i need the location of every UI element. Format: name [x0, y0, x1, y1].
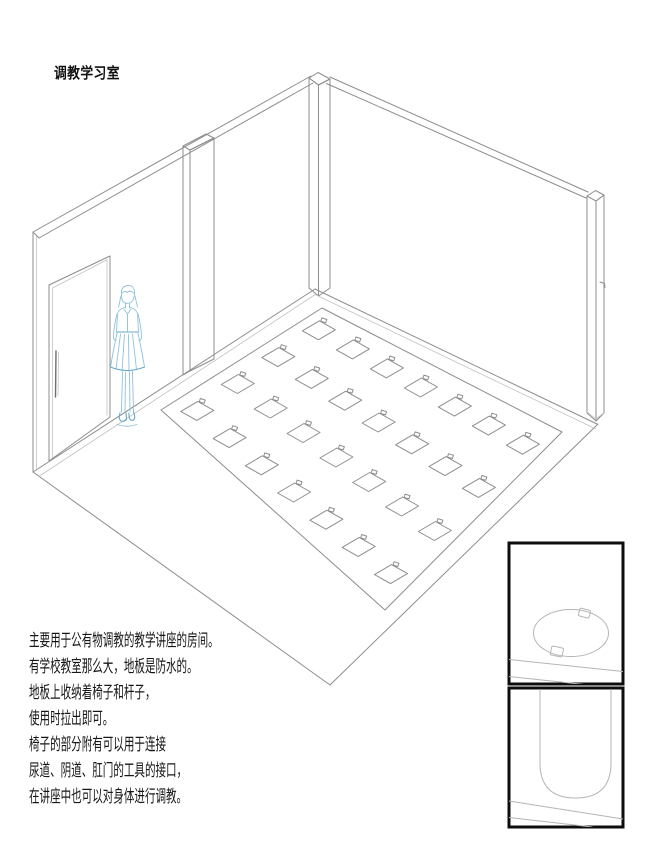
- page: 调教学习室 主要用于公有物调教的教学讲座的房间。 有学校教室那么大，地板是防水的…: [0, 0, 650, 850]
- floor-hatch: [342, 535, 375, 557]
- floor-hatch: [329, 388, 362, 410]
- floor-hatch: [310, 507, 343, 529]
- description-line: 主要用于公有物调教的教学讲座的房间。: [29, 628, 219, 654]
- floor-hatch: [262, 345, 295, 367]
- floor-hatch: [213, 426, 246, 448]
- description-line: 椅子的部分附有可以用于连接: [29, 732, 219, 758]
- floor-hatch: [353, 470, 386, 492]
- description-line: 在讲座中也可以对身体进行调教。: [29, 784, 219, 810]
- floor-hatch: [418, 519, 451, 541]
- girl-skirt: [111, 333, 145, 372]
- floor-hatch: [295, 367, 328, 389]
- floor-hatch: [336, 337, 369, 359]
- floor-hatch: [438, 394, 471, 416]
- floor-hatch: [287, 421, 320, 443]
- description-line: 地板上收纳着椅子和杆子，: [29, 680, 219, 706]
- girl-shoes: [119, 412, 135, 421]
- inset-hatch-slot-view: [509, 688, 623, 827]
- floor-hatch: [278, 480, 311, 502]
- inset1-frame: [509, 543, 623, 684]
- floor-hatch: [396, 432, 429, 454]
- floor-hatch: [462, 476, 495, 498]
- floor-hatch: [245, 453, 278, 475]
- girl-head: [121, 285, 134, 303]
- description-line: 有学校教室那么大，地板是防水的。: [29, 654, 219, 680]
- girl-legs: [122, 372, 134, 413]
- floor-hatch: [404, 375, 437, 397]
- wall-pillar: [183, 134, 214, 375]
- floor-hatch: [181, 399, 214, 421]
- floor-hatch: [375, 562, 408, 584]
- page-title: 调教学习室: [54, 62, 120, 83]
- right-wall: [315, 77, 597, 429]
- hatch-grid: [181, 318, 540, 584]
- left-wall-base: [33, 289, 315, 472]
- floor-hatch: [254, 396, 287, 418]
- inset-hatch-top-view: [509, 543, 623, 685]
- floor-hatch: [506, 432, 539, 454]
- floor-hatch: [370, 356, 403, 378]
- door-handle-icon: [56, 351, 57, 397]
- description-block: 主要用于公有物调教的教学讲座的房间。 有学校教室那么大，地板是防水的。 地板上收…: [29, 628, 219, 810]
- door: [49, 256, 110, 461]
- floor-hatch: [302, 318, 335, 340]
- girl-torso: [117, 307, 139, 332]
- description-line: 尿道、阴道、肛门的工具的接口，: [29, 758, 219, 784]
- corner-pillar: [309, 73, 330, 297]
- end-pillar: [586, 191, 605, 422]
- floor-hatch: [429, 454, 462, 476]
- floor-hatch: [362, 410, 395, 432]
- floor-hatch: [320, 445, 353, 467]
- girl-sketch: [111, 285, 145, 426]
- description-line: 使用时拉出即可。: [29, 706, 219, 732]
- floor-hatch: [221, 372, 254, 394]
- floor-hatch: [472, 413, 505, 435]
- inset2-frame: [509, 688, 623, 827]
- floor-hatch: [386, 494, 419, 516]
